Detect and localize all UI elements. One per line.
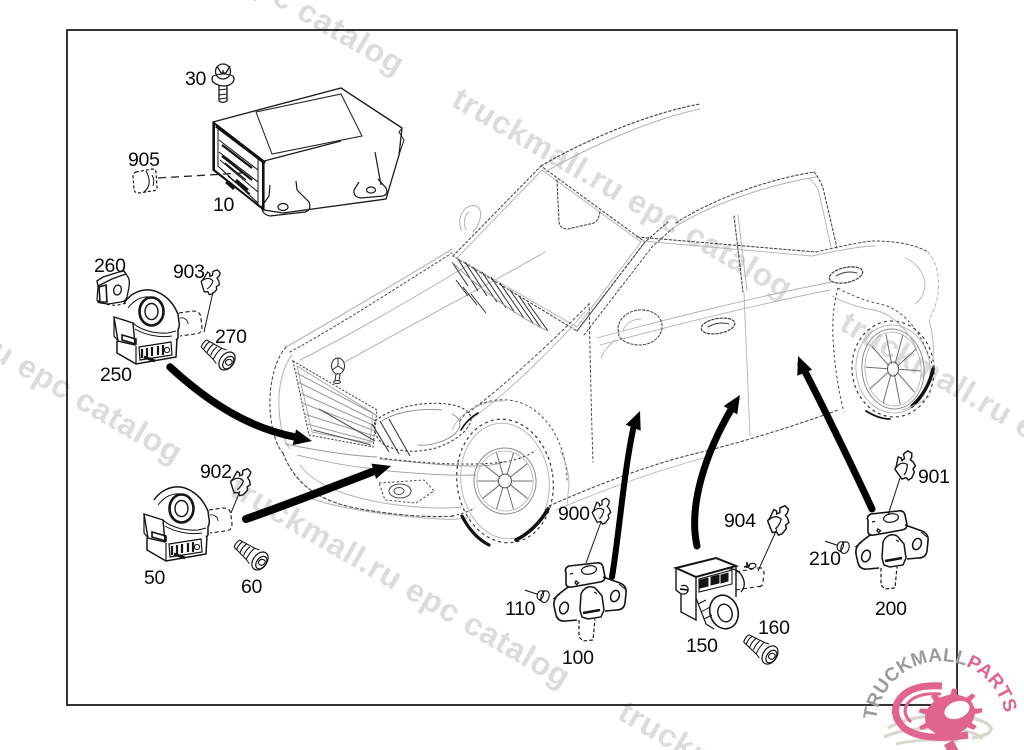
svg-text:10: 10 bbox=[213, 194, 235, 216]
svg-text:110: 110 bbox=[505, 598, 536, 620]
svg-text:210: 210 bbox=[809, 548, 841, 570]
svg-text:truckmall.ru epc catalog: truckmall.ru epc catalog bbox=[0, 245, 189, 471]
svg-text:900: 900 bbox=[558, 503, 590, 525]
svg-text:905: 905 bbox=[128, 149, 160, 171]
svg-text:truckmall.ru epc catalog: truckmall.ru epc catalog bbox=[446, 80, 799, 306]
svg-text:901: 901 bbox=[918, 466, 950, 488]
svg-text:260: 260 bbox=[94, 255, 126, 277]
svg-text:903: 903 bbox=[173, 261, 205, 283]
svg-text:200: 200 bbox=[875, 598, 907, 620]
svg-text:150: 150 bbox=[686, 635, 718, 657]
svg-text:270: 270 bbox=[215, 326, 247, 348]
svg-text:250: 250 bbox=[100, 364, 132, 386]
svg-text:30: 30 bbox=[185, 68, 207, 90]
svg-text:100: 100 bbox=[562, 647, 594, 669]
svg-text:902: 902 bbox=[200, 461, 232, 483]
svg-text:truckmall.ru epc catalog: truckmall.ru epc catalog bbox=[58, 0, 411, 82]
svg-text:60: 60 bbox=[241, 576, 263, 598]
svg-text:904: 904 bbox=[724, 510, 756, 532]
svg-text:160: 160 bbox=[758, 617, 790, 639]
svg-text:50: 50 bbox=[144, 567, 166, 589]
